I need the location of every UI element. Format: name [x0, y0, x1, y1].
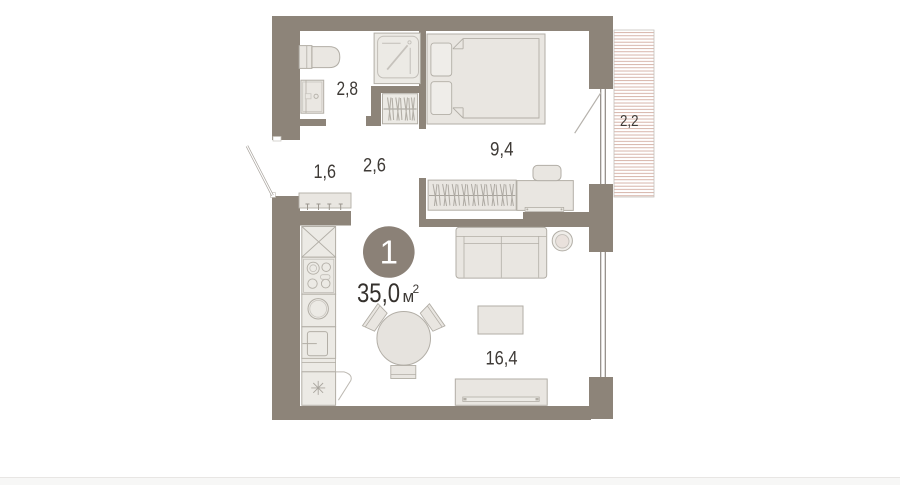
svg-text:2,6: 2,6 — [363, 156, 386, 177]
svg-text:35,0: 35,0 — [357, 278, 400, 308]
svg-text:2,2: 2,2 — [620, 113, 639, 130]
svg-text:16,4: 16,4 — [486, 349, 518, 370]
svg-text:2,8: 2,8 — [337, 79, 359, 100]
svg-text:1: 1 — [380, 234, 398, 271]
svg-text:9,4: 9,4 — [490, 140, 514, 161]
svg-text:1,6: 1,6 — [314, 162, 337, 183]
svg-text:2: 2 — [413, 282, 420, 296]
